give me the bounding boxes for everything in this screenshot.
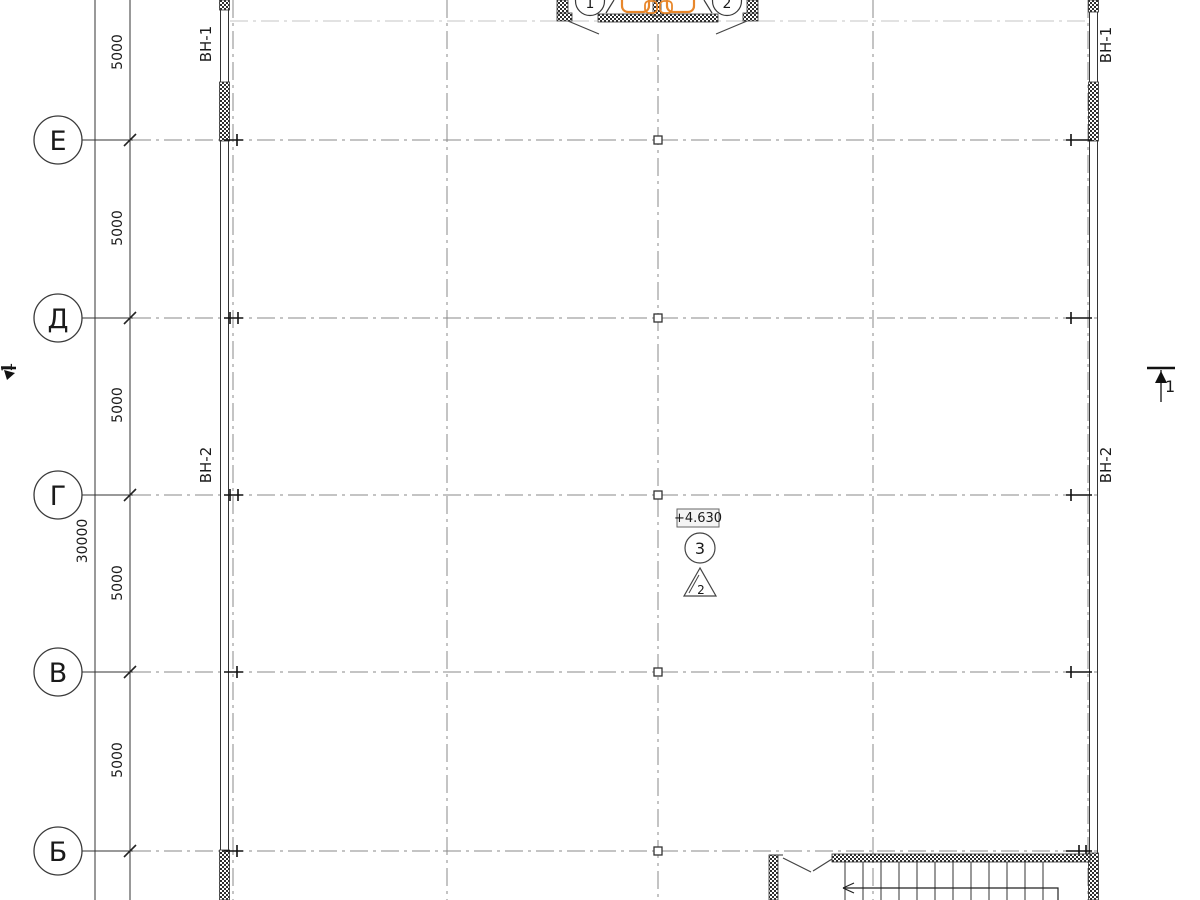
grid-bubble-row: Е xyxy=(34,116,82,164)
stair-wall-left-stub xyxy=(769,855,778,900)
grid-lines xyxy=(133,0,1097,900)
section-label-left: 1 xyxy=(0,362,16,372)
shaft-wall-right-foot xyxy=(743,13,758,21)
dimension-label-5000: 5000 xyxy=(110,34,126,70)
detail-triangle-label: 2 xyxy=(697,583,705,597)
stair-door-leaf xyxy=(813,859,832,871)
top-axis-label: 1 xyxy=(586,0,595,12)
axis-leader-slash xyxy=(606,0,614,13)
section-marker-right: 1 xyxy=(1147,368,1175,402)
grid-bubble-label: В xyxy=(49,658,68,689)
dimension-label-5000: 5000 xyxy=(110,742,126,778)
grid-bubble-label: Б xyxy=(49,837,68,868)
top-axis-bubble: 2 xyxy=(713,0,742,16)
window-tag-vn2-right: ВН-2 xyxy=(1097,447,1115,484)
window-tag-vn1-right: ВН-1 xyxy=(1097,27,1115,64)
wall-hatch-segment xyxy=(220,0,230,10)
section-label-right: 1 xyxy=(1165,377,1175,396)
grid-bubble-row: Г xyxy=(34,471,82,519)
shaft-opening-line-right xyxy=(716,21,747,34)
wall-hatch-segment xyxy=(220,850,230,900)
wall-hatch-segment xyxy=(220,82,230,141)
stair-door-leaf xyxy=(783,858,811,872)
dimension-label-5000: 5000 xyxy=(110,210,126,246)
staircase xyxy=(769,854,1090,900)
shaft-wall-left-stub xyxy=(557,0,568,14)
elevation-label: +4.630 xyxy=(674,511,722,526)
grid-bubble-row: Д xyxy=(34,294,82,342)
wall-hatch-segment xyxy=(1089,82,1099,141)
section-marker-left: 1 xyxy=(0,362,16,380)
column-marker xyxy=(654,136,662,144)
grid-bubble-row: В xyxy=(34,648,82,696)
grid-bubble-label: Г xyxy=(50,481,66,512)
floor-plan-drawing: 5000 5000 5000 5000 5000 30000 Е Д Г В Б xyxy=(0,0,1200,900)
dimension-label-5000: 5000 xyxy=(110,387,126,423)
floor-plan-canvas: 5000 5000 5000 5000 5000 30000 Е Д Г В Б xyxy=(0,0,1200,900)
window-tag-vn1-left: ВН-1 xyxy=(197,26,215,63)
grid-row-bubbles: Е Д Г В Б xyxy=(34,116,82,875)
dimension-label-total: 30000 xyxy=(75,519,91,564)
top-axis-label: 2 xyxy=(723,0,732,12)
stair-wall-top xyxy=(832,854,1090,862)
dimension-labels: 5000 5000 5000 5000 5000 30000 xyxy=(75,34,126,778)
grid-bubble-label: Е xyxy=(49,126,66,157)
detail-circle-label: 3 xyxy=(695,539,705,558)
column-marker xyxy=(654,847,662,855)
column-marker xyxy=(654,314,662,322)
grid-bubble-row: Б xyxy=(34,827,82,875)
column-marker xyxy=(654,491,662,499)
left-exterior-wall xyxy=(220,0,230,900)
axis-leader-slash xyxy=(704,0,712,13)
top-axis-bubble: 1 xyxy=(576,0,605,16)
stair-direction-arrow xyxy=(843,883,1058,900)
window-tags: ВН-1 ВН-2 ВН-1 ВН-2 xyxy=(197,26,1115,484)
wall-hatch-segment xyxy=(1089,0,1099,12)
dimension-label-5000: 5000 xyxy=(110,565,126,601)
stair-treads xyxy=(845,862,1043,900)
center-annotations: +4.630 3 2 xyxy=(674,509,722,597)
window-tag-vn2-left: ВН-2 xyxy=(197,447,215,484)
column-marker xyxy=(654,668,662,676)
shaft-opening-line-left xyxy=(568,21,599,34)
grid-bubble-label: Д xyxy=(47,304,68,335)
shaft-wall-right-stub xyxy=(747,0,758,14)
shaft-wall-left-foot xyxy=(557,13,572,21)
